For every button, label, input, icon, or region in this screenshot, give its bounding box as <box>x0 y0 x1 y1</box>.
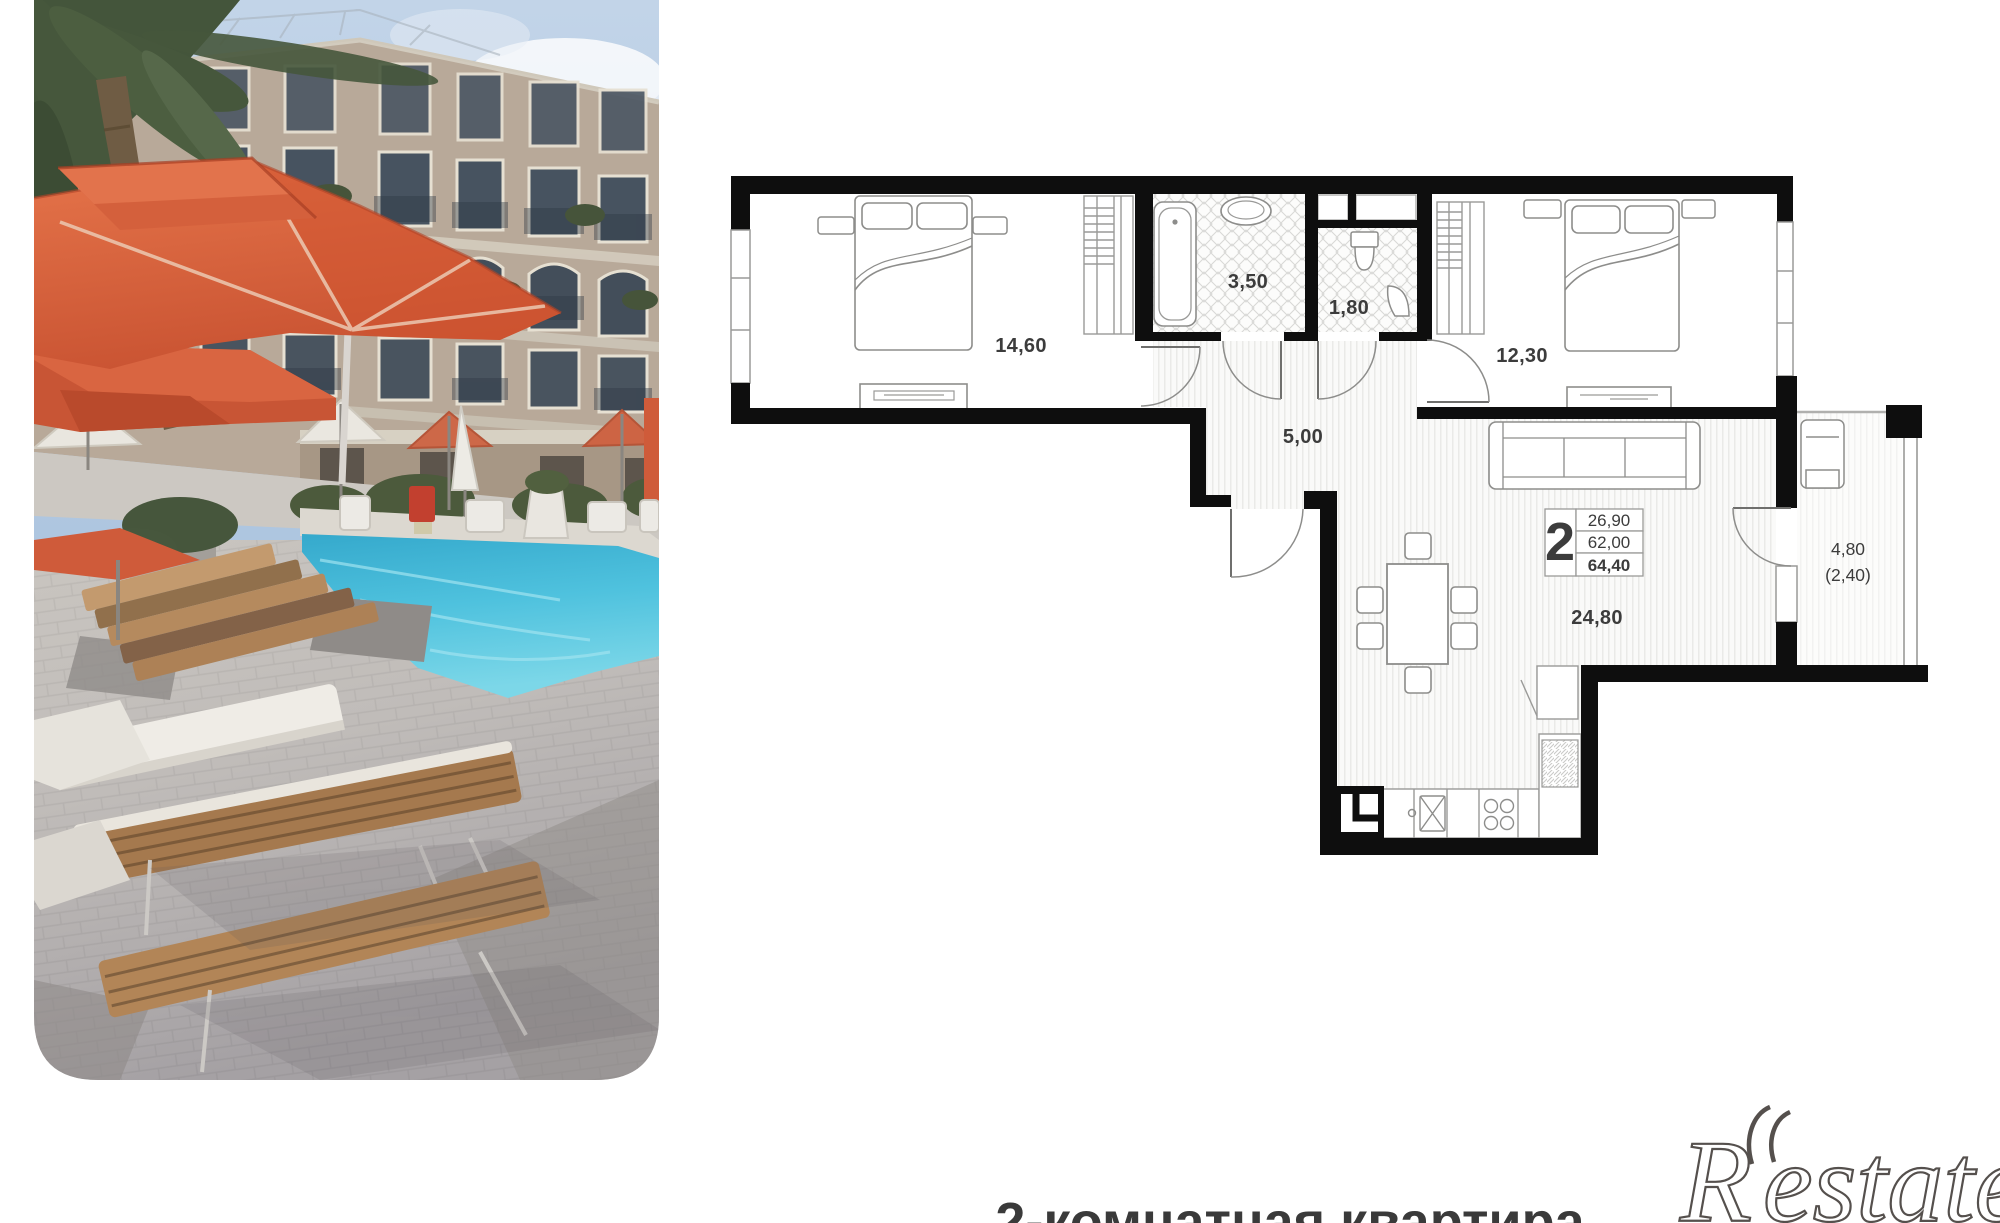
svg-text:2-комнатная квартира: 2-комнатная квартира <box>995 1192 1585 1223</box>
svg-text:(2,40): (2,40) <box>1825 565 1871 585</box>
svg-text:4,80: 4,80 <box>1831 539 1865 559</box>
svg-text:2: 2 <box>1545 512 1575 572</box>
svg-text:14,60: 14,60 <box>995 335 1047 357</box>
svg-text:12,30: 12,30 <box>1496 345 1548 367</box>
svg-text:estate: estate <box>1763 1122 2000 1223</box>
svg-text:5,00: 5,00 <box>1283 426 1323 448</box>
svg-text:26,90: 26,90 <box>1588 511 1631 530</box>
svg-text:64,40: 64,40 <box>1588 556 1631 575</box>
svg-text:62,00: 62,00 <box>1588 533 1631 552</box>
svg-text:24,80: 24,80 <box>1571 607 1623 629</box>
svg-text:R: R <box>1679 1116 1752 1223</box>
svg-text:3,50: 3,50 <box>1228 271 1268 293</box>
svg-text:1,80: 1,80 <box>1329 297 1369 319</box>
